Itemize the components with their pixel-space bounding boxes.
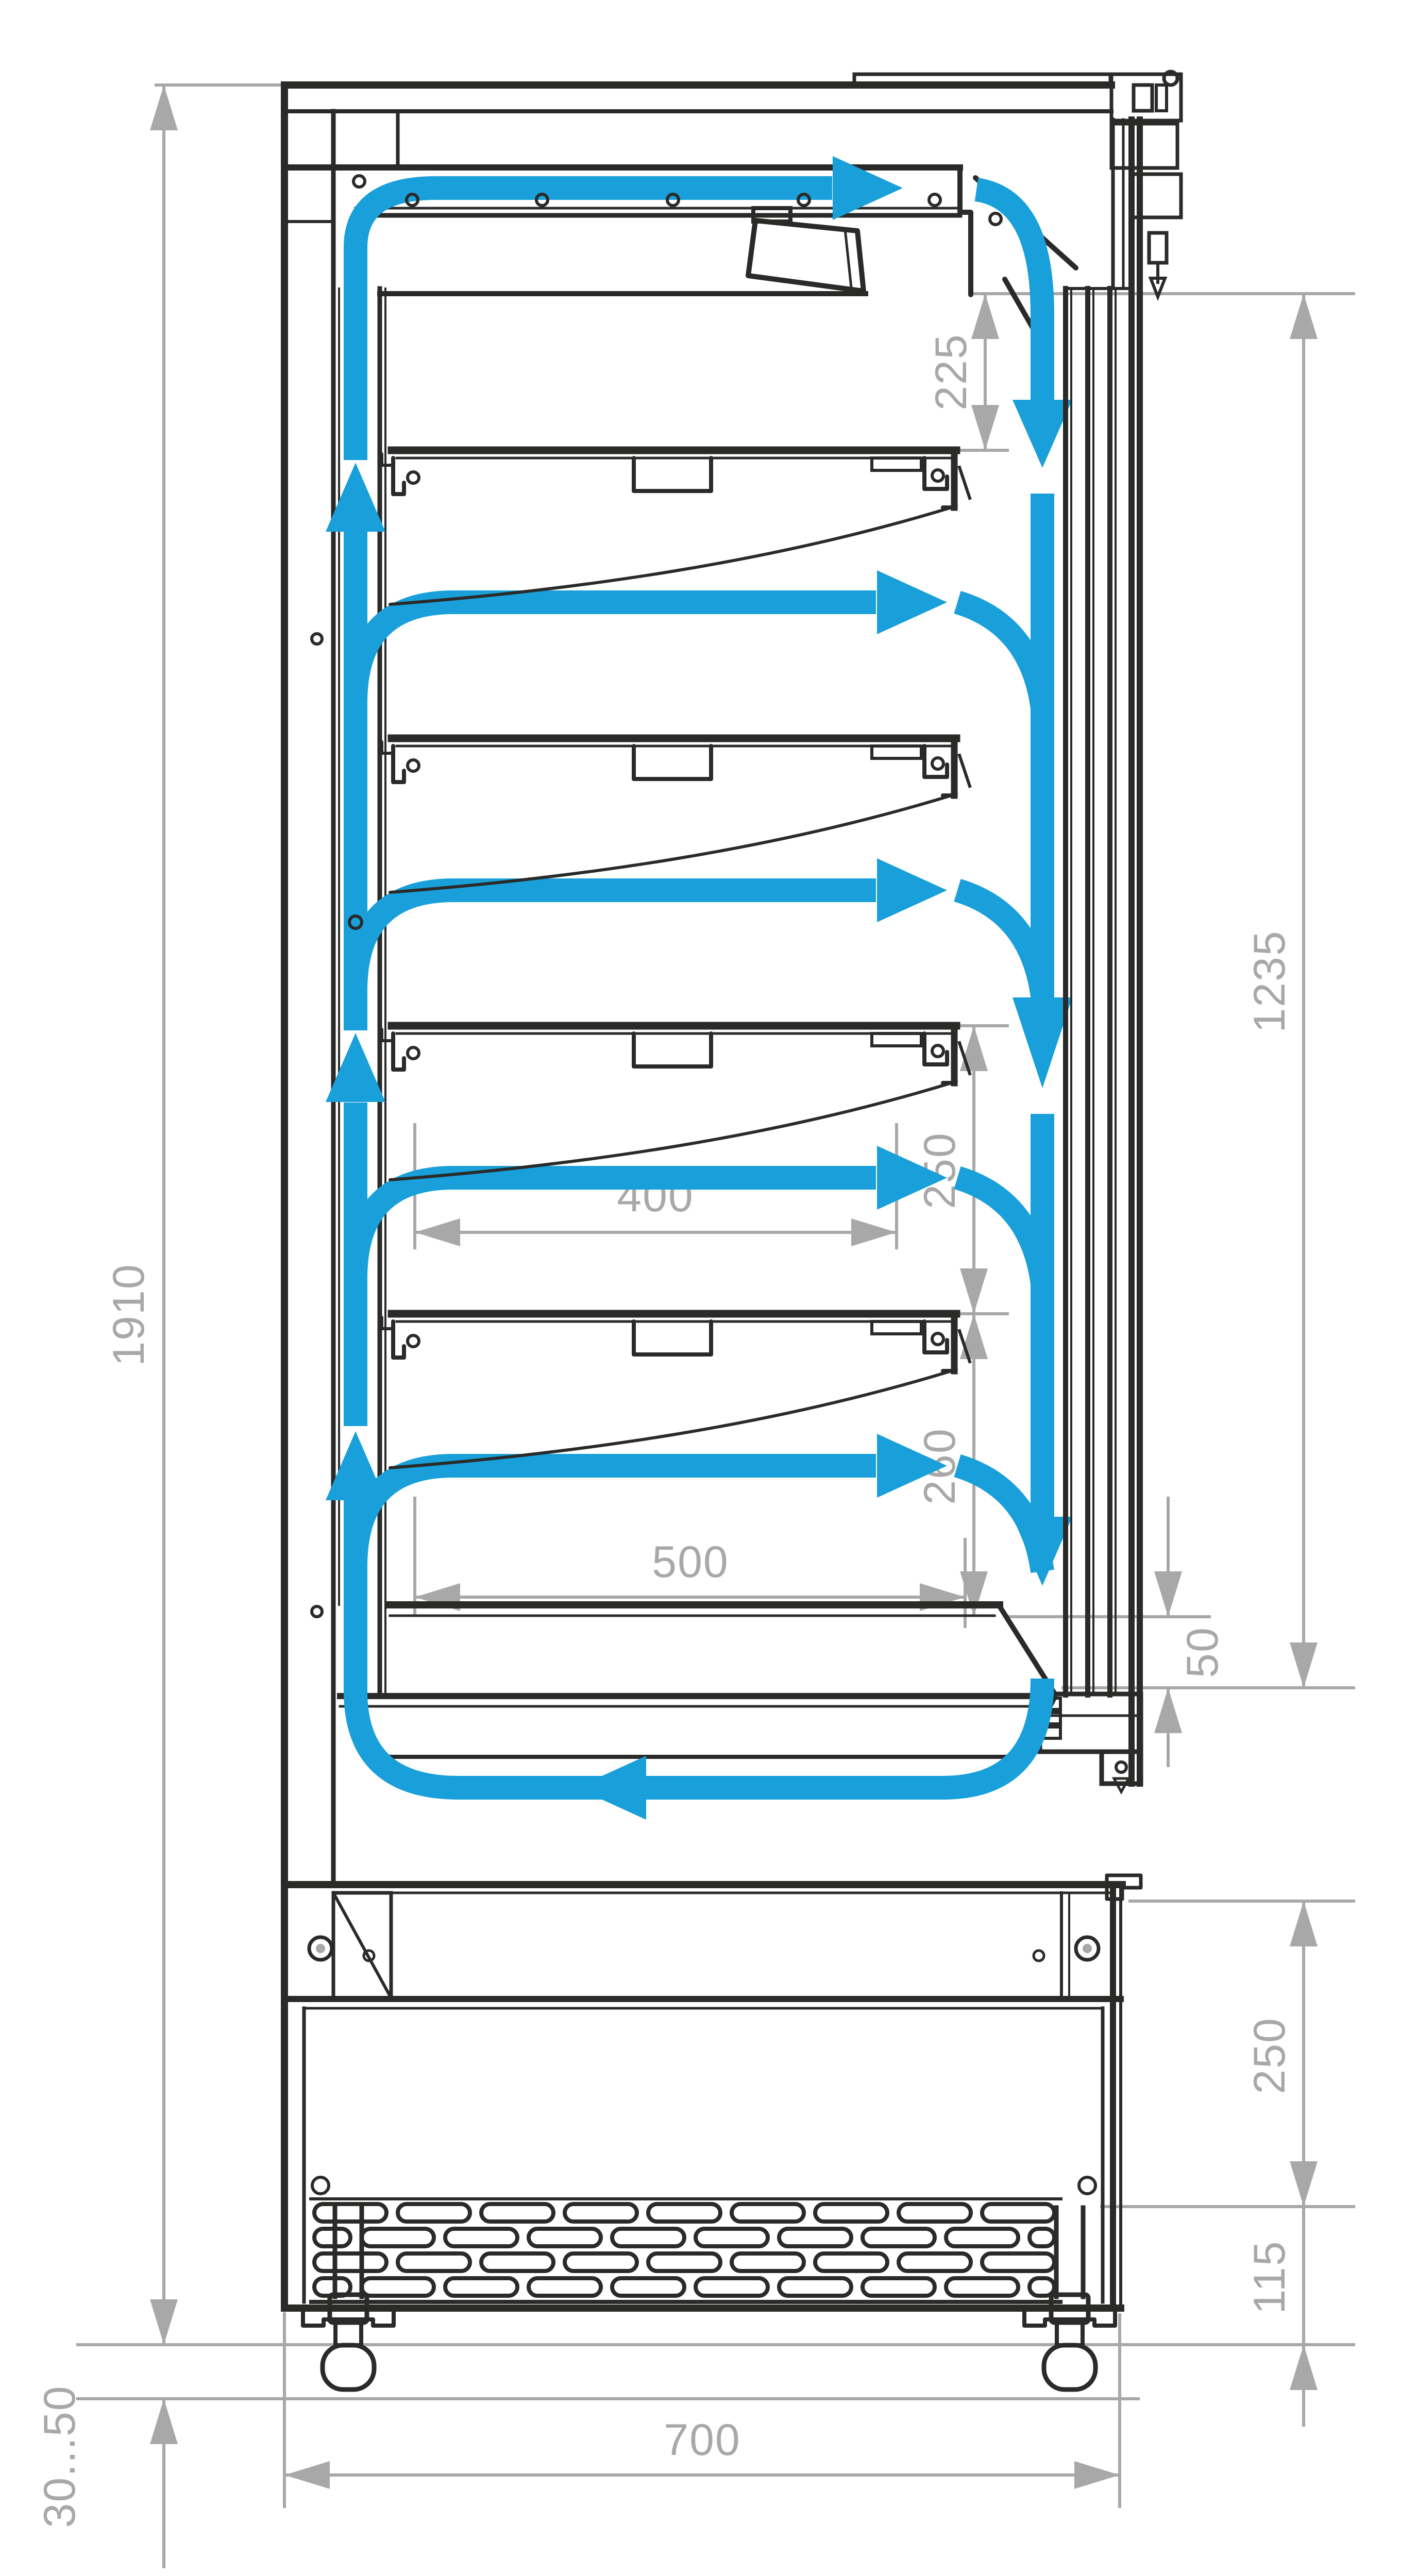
dim-700-label: 700 [664, 2415, 741, 2465]
dim-1910-label: 1910 [104, 1263, 154, 1366]
dim-30-50-label: 30...50 [35, 2385, 85, 2528]
cabinet-section-drawing: 225 1235 250 260 400 [0, 0, 1417, 2576]
dim-50-label: 50 [1178, 1626, 1227, 1678]
dim-115-label: 115 [1245, 2240, 1294, 2314]
dim-250-base-label: 250 [1245, 2017, 1294, 2094]
background [0, 0, 1417, 2576]
dim-225-label: 225 [926, 333, 976, 411]
dim-1235-label: 1235 [1245, 930, 1294, 1032]
dim-500-label: 500 [652, 1537, 729, 1587]
